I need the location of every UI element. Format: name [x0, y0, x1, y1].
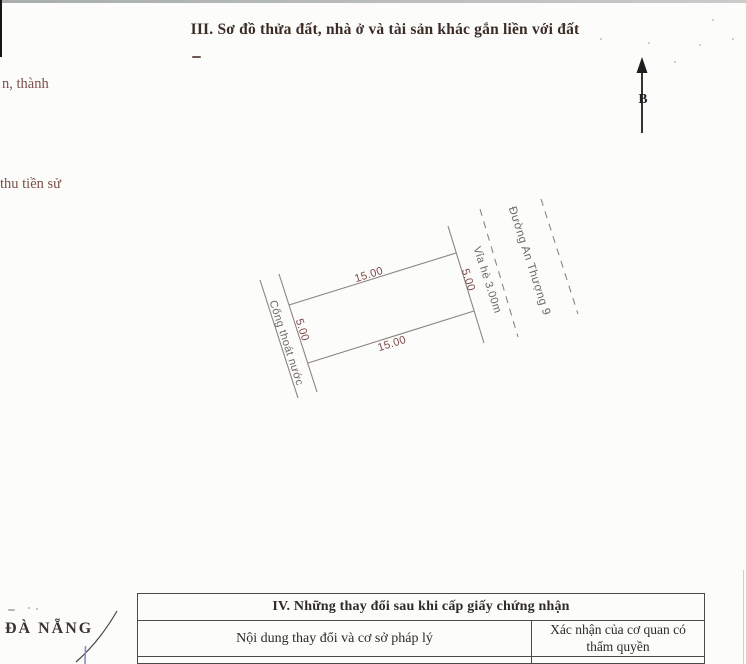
city-name: ĐÀ NẴNG: [5, 620, 93, 638]
scanned-certificate-page: III. Sơ đồ thửa đất, nhà ở và tài sản kh…: [0, 0, 746, 664]
section4-table-title: IV. Những thay đổi sau khi cấp giấy chứn…: [138, 594, 704, 621]
section4-col-header-content: Nội dung thay đổi và cơ sở pháp lý: [138, 621, 532, 656]
blue-pen-mark: [85, 646, 86, 664]
section4-col-header-confirmation: Xác nhận của cơ quan có thẩm quyền: [532, 621, 704, 656]
section4-changes-table: IV. Những thay đổi sau khi cấp giấy chứn…: [137, 593, 705, 664]
plot-diagram-linework: [0, 0, 746, 664]
north-label: B: [638, 91, 647, 107]
section4-empty-row: [138, 657, 704, 664]
